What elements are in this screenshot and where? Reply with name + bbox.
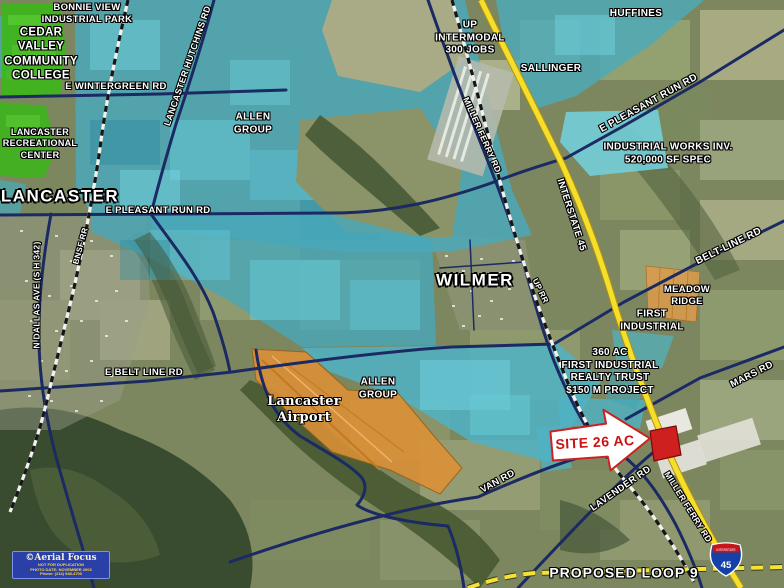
label-line: RECREATIONAL [3,138,77,149]
label-first-industrial-project: 360 AC FIRST INDUSTRIAL REALTY TRUST $15… [561,347,658,397]
label-line: REALTY TRUST [561,372,658,385]
label-city-wilmer: WILMER [436,269,514,290]
label-line: GROUP [359,389,397,402]
label-line: ALLEN [234,112,272,125]
aerial-map: INTERSTATE 45 BONNIE VIEW INDUSTRIAL PAR… [0,0,784,588]
label-road-n-dallas-ave: N DALLAS AVE (S H 342) [32,241,43,348]
label-line: MEADOW [664,284,710,296]
label-line: $150 M PROJECT [561,385,658,398]
label-road-e-wintergreen: E WINTERGREEN RD [65,81,166,93]
label-line: Airport [267,410,341,426]
label-cedar-valley-college: CEDAR VALLEY COMMUNITY COLLEGE [4,25,78,83]
label-line: INTERMODAL [435,32,505,45]
label-line: UP [435,19,505,32]
label-city-lancaster: LANCASTER [1,185,119,206]
label-line: ALLEN [359,377,397,390]
label-sallinger: SALLINGER [521,63,581,76]
label-line: GROUP [234,124,272,137]
label-line: 520,000 SF SPEC [603,154,732,167]
label-meadow-ridge: MEADOW RIDGE [664,284,710,308]
label-line: RIDGE [664,296,710,308]
label-line: INDUSTRIAL PARK [42,14,133,26]
label-huffines: HUFFINES [610,8,662,21]
label-allen-group-south: ALLEN GROUP [359,377,397,402]
svg-text:INTERSTATE: INTERSTATE [716,548,735,552]
label-road-e-belt-line: E BELT LINE RD [105,367,183,379]
label-line: BONNIE VIEW [42,2,133,14]
label-line: LANCASTER [3,127,77,138]
label-line: INDUSTRIAL [620,321,684,334]
label-proposed-loop-9: PROPOSED LOOP 9 [549,564,698,582]
label-lancaster-rec-center: LANCASTER RECREATIONAL CENTER [3,127,77,161]
label-bonnie-view-industrial-park: BONNIE VIEW INDUSTRIAL PARK [42,2,133,26]
label-line: CEDAR [4,25,78,39]
label-up-intermodal: UP INTERMODAL 300 JOBS [435,19,505,57]
aerial-focus-watermark: ©Aerial Focus NOT FOR DUPLICATION PHOTO … [12,551,110,579]
label-line: FIRST INDUSTRIAL [561,360,658,373]
label-line: COMMUNITY [4,54,78,68]
label-line: 360 AC [561,347,658,360]
label-road-e-pleasant-run-left: E PLEASANT RUN RD [106,205,211,217]
label-line: INDUSTRIAL WORKS INV. [603,142,732,155]
label-line: FIRST [620,309,684,322]
label-line: Lancaster [267,394,341,410]
label-line: CENTER [3,150,77,161]
label-first-industrial: FIRST INDUSTRIAL [620,309,684,334]
watermark-line: Phone: (214) 948-4700 [13,572,109,577]
label-line: VALLEY [4,40,78,54]
label-lancaster-airport: Lancaster Airport [267,394,341,427]
label-industrial-works: INDUSTRIAL WORKS INV. 520,000 SF SPEC [603,142,732,167]
site-parcel [650,426,681,461]
label-allen-group-north: ALLEN GROUP [234,112,272,137]
label-line: 300 JOBS [435,44,505,57]
svg-text:45: 45 [721,560,732,571]
